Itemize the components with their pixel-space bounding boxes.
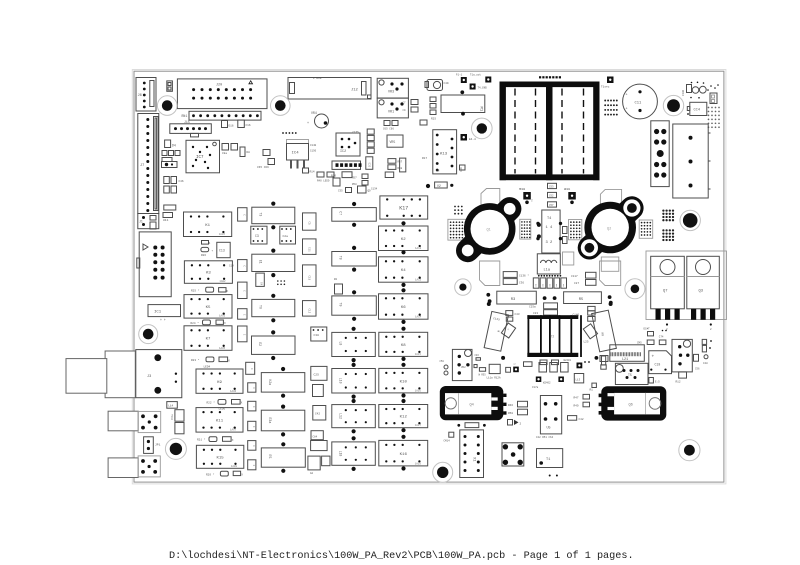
svg-text:F1-1: F1-1 <box>456 74 463 77</box>
svg-text:+ +: + + <box>160 318 166 322</box>
svg-text:L10: L10 <box>338 378 342 384</box>
svg-text:E4-4: E4-4 <box>469 138 476 141</box>
svg-text:Q4: Q4 <box>470 404 474 408</box>
svg-text:C42: C42 <box>579 418 584 421</box>
svg-text:L13: L13 <box>576 378 581 381</box>
svg-text:C9: C9 <box>403 109 407 112</box>
svg-text:T3: T3 <box>258 212 262 216</box>
svg-text:C25: C25 <box>314 373 320 376</box>
svg-text:J6: J6 <box>138 94 142 98</box>
svg-text:R1: R1 <box>590 389 594 392</box>
svg-text:R17: R17 <box>422 157 427 160</box>
svg-text:C12: C12 <box>308 309 311 314</box>
svg-text:E3a: E3a <box>268 418 272 424</box>
svg-text:3 2: 3 2 <box>546 241 554 245</box>
svg-text:Q9: Q9 <box>368 190 372 193</box>
svg-text:T2: T2 <box>551 335 555 339</box>
svg-text:C11: C11 <box>308 247 311 252</box>
svg-text:RN1: RN1 <box>182 114 188 118</box>
svg-text:W2402: W2402 <box>543 382 551 385</box>
svg-text:E5: E5 <box>268 455 272 459</box>
svg-text:R3: R3 <box>511 298 516 302</box>
svg-text:R21 *: R21 * <box>197 438 206 442</box>
svg-text:R40 LED9: R40 LED9 <box>317 180 330 183</box>
svg-text:L14: L14 <box>168 405 173 408</box>
svg-text:K12: K12 <box>400 416 408 420</box>
svg-text:C25a: C25a <box>529 306 536 309</box>
svg-text:C155: C155 <box>353 131 360 134</box>
svg-text:R58: R58 <box>352 183 357 186</box>
svg-text:C52: C52 <box>549 195 554 198</box>
svg-text:T1sec: T1sec <box>601 86 610 89</box>
svg-text:L21: L21 <box>622 358 628 362</box>
svg-text:D4: D4 <box>172 144 176 148</box>
svg-text:C49: C49 <box>444 82 449 85</box>
svg-text:R25: R25 <box>431 118 436 121</box>
svg-text:T6: T6 <box>258 305 262 309</box>
svg-text:J20: J20 <box>216 84 222 88</box>
svg-text:T4: T4 <box>547 217 551 221</box>
svg-text:L8: L8 <box>338 341 342 345</box>
svg-text:R46: R46 <box>508 404 513 407</box>
svg-text:VR3: VR3 <box>388 91 394 95</box>
svg-text:1A15: 1A15 <box>415 353 422 356</box>
svg-text:K2: K2 <box>401 238 406 242</box>
svg-text:C8a: C8a <box>222 152 227 155</box>
svg-text:C2a: C2a <box>283 235 289 238</box>
svg-text:D16: D16 <box>229 125 234 128</box>
svg-text:V2: V2 <box>437 184 441 188</box>
svg-text:DC#T: DC#T <box>644 328 651 331</box>
svg-text:IC4: IC4 <box>292 152 300 156</box>
svg-text:J12: J12 <box>351 89 359 93</box>
svg-text:L1a: L1a <box>544 269 551 273</box>
svg-text:C43: C43 <box>515 313 520 316</box>
svg-text:CM5: CM5 <box>637 341 642 344</box>
svg-text:IC2: IC2 <box>340 150 346 154</box>
svg-text:K15: K15 <box>216 456 224 460</box>
svg-text:1N: 1N <box>436 170 440 173</box>
svg-text:C74: C74 <box>659 335 664 338</box>
svg-text:R10: R10 <box>331 175 336 178</box>
svg-text:K8: K8 <box>401 344 406 348</box>
svg-text:T1: T1 <box>546 458 550 462</box>
svg-text:LED4: LED4 <box>204 365 211 368</box>
svg-text:CM14: CM14 <box>444 440 451 443</box>
svg-text:R26: R26 <box>201 254 206 257</box>
svg-text:C48: C48 <box>703 362 708 365</box>
svg-text:L12: L12 <box>338 413 342 419</box>
svg-text:K16: K16 <box>400 453 408 457</box>
svg-text:1A14: 1A14 <box>415 316 422 319</box>
svg-text:L18: L18 <box>338 451 342 457</box>
svg-text:R12: R12 <box>676 381 681 384</box>
svg-text:R14: R14 <box>310 171 315 174</box>
svg-text:1A05: 1A05 <box>219 347 226 350</box>
svg-text:T4_GND: T4_GND <box>478 87 488 90</box>
svg-text:LED6: LED6 <box>219 408 226 411</box>
svg-text:J1: J1 <box>139 220 143 224</box>
svg-text:1A08: 1A08 <box>231 465 238 468</box>
svg-text:C46: C46 <box>475 354 480 357</box>
svg-text:CC4: CC4 <box>694 109 700 113</box>
svg-text:T9: T9 <box>338 303 342 307</box>
svg-text:C7: C7 <box>338 211 342 215</box>
svg-text:C42: C42 <box>315 413 320 416</box>
svg-text:C13: C13 <box>219 249 225 253</box>
svg-text:C65 C66: C65 C66 <box>383 128 394 131</box>
svg-text:K11: K11 <box>216 419 224 423</box>
svg-text:+: + <box>307 122 309 126</box>
svg-text:1A06: 1A06 <box>230 390 237 393</box>
svg-text:L11a R12A: L11a R12A <box>487 377 501 380</box>
svg-text:WFB1: WFB1 <box>564 188 571 191</box>
svg-text:VR4: VR4 <box>311 111 317 115</box>
svg-text:R57: R57 <box>352 177 357 180</box>
svg-text:C14: C14 <box>229 265 234 268</box>
svg-text:C19: C19 <box>655 363 661 367</box>
svg-text:K5: K5 <box>206 306 211 310</box>
svg-text:R24 *: R24 * <box>191 321 200 325</box>
svg-text:C3: C3 <box>255 234 259 238</box>
svg-text:C53: C53 <box>549 186 554 189</box>
svg-text:C57: C57 <box>549 204 554 207</box>
svg-text:Q3: Q3 <box>699 290 704 294</box>
svg-text:C117: C117 <box>571 275 578 278</box>
svg-text:1A18: 1A18 <box>415 462 422 465</box>
svg-text:C36: C36 <box>519 282 524 285</box>
svg-text:1A07: 1A07 <box>230 429 237 432</box>
svg-text:R5: R5 <box>579 298 584 302</box>
svg-text:K9: K9 <box>217 381 222 385</box>
svg-text:1A17: 1A17 <box>415 424 422 427</box>
svg-text:1A1M: 1A1M <box>219 233 226 236</box>
svg-text:C17a: C17a <box>532 386 539 389</box>
svg-text:C16: C16 <box>246 124 251 127</box>
svg-text:1A03: 1A03 <box>219 315 226 318</box>
svg-text:K4: K4 <box>401 269 406 273</box>
svg-text:C56: C56 <box>695 368 700 371</box>
svg-text:C42 R51 C64: C42 R51 C64 <box>536 436 554 439</box>
svg-text:T1a_out: T1a_out <box>470 74 481 77</box>
svg-text:1A12: 1A12 <box>415 247 422 250</box>
svg-text:K6: K6 <box>401 306 406 310</box>
svg-text:R47: R47 <box>574 397 579 400</box>
svg-text:1A16: 1A16 <box>415 389 422 392</box>
svg-text:C23: C23 <box>533 312 538 315</box>
svg-text:K13: K13 <box>440 153 448 157</box>
svg-text:C5: C5 <box>308 222 311 226</box>
svg-text:U11: U11 <box>163 219 169 222</box>
svg-text:K7: K7 <box>206 338 211 342</box>
svg-text:J7: J7 <box>140 164 144 168</box>
svg-text:C140: C140 <box>310 144 317 147</box>
svg-text:VR2: VR2 <box>461 366 466 369</box>
svg-text:IC1: IC1 <box>154 311 162 315</box>
svg-text:R49: R49 <box>574 404 579 407</box>
svg-text:C150: C150 <box>310 150 317 153</box>
svg-text:T5: T5 <box>628 373 632 377</box>
svg-text:1A02: 1A02 <box>219 280 226 283</box>
svg-text:C15: C15 <box>308 276 311 281</box>
svg-text:R2: R2 <box>334 278 338 281</box>
svg-text:W2401: W2401 <box>564 359 572 362</box>
svg-text:C27: C27 <box>574 282 579 285</box>
svg-text:CCK: CCK <box>460 167 463 172</box>
svg-text:C136 *: C136 * <box>519 274 529 278</box>
svg-text:A2: A2 <box>310 472 314 475</box>
svg-text:VR1: VR1 <box>388 111 394 115</box>
svg-text:W R55: W R55 <box>479 373 487 376</box>
svg-text:R23 *: R23 * <box>191 358 200 362</box>
svg-text:L25: L25 <box>584 341 589 344</box>
svg-text:T8: T8 <box>338 256 342 260</box>
svg-text:C134: C134 <box>371 188 378 191</box>
svg-text:E:5: E:5 <box>655 381 660 384</box>
svg-text:Q7: Q7 <box>663 290 668 294</box>
svg-text:IC5: IC5 <box>368 162 371 167</box>
svg-text:E2: E2 <box>258 342 262 346</box>
svg-text:Q2: Q2 <box>607 228 611 232</box>
svg-text:C84: C84 <box>313 435 318 438</box>
svg-text:1A13: 1A13 <box>415 279 422 282</box>
svg-text:J15: J15 <box>184 120 190 124</box>
svg-text:+: + <box>626 94 628 98</box>
svg-text:K17: K17 <box>399 206 408 212</box>
svg-text:C30: C30 <box>314 334 320 337</box>
svg-text:J3: J3 <box>147 375 151 379</box>
svg-text:K1: K1 <box>205 224 210 228</box>
svg-text:+: + <box>652 355 655 360</box>
svg-text:R50: R50 <box>508 412 513 415</box>
svg-text:VR5: VR5 <box>390 140 396 144</box>
svg-text:C50: C50 <box>440 360 445 363</box>
svg-text:R25 *: R25 * <box>191 289 200 293</box>
svg-text:E1: E1 <box>258 260 262 264</box>
svg-text:X1: X1 <box>472 457 476 462</box>
svg-text:+: + <box>626 108 628 112</box>
svg-text:M1: M1 <box>479 107 483 112</box>
svg-text:C11: C11 <box>635 102 643 106</box>
svg-text:C130: C130 <box>682 89 685 96</box>
svg-text:K10: K10 <box>400 380 408 384</box>
svg-text:K3: K3 <box>206 272 211 276</box>
svg-text:JP1: JP1 <box>155 444 161 447</box>
svg-text:Q1: Q1 <box>487 229 491 233</box>
svg-text:Q6: Q6 <box>629 404 633 408</box>
svg-text:C7: C7 <box>403 102 407 105</box>
svg-text:C46: C46 <box>179 180 184 183</box>
svg-text:151a: 151a <box>171 414 174 420</box>
svg-text:1 4: 1 4 <box>546 226 554 230</box>
svg-text:D8: D8 <box>247 151 251 154</box>
svg-text:R22 *: R22 * <box>207 401 216 405</box>
svg-text:K2a: K2a <box>268 379 272 385</box>
svg-text:D:\lochdesi\NT-Electronics\100: D:\lochdesi\NT-Electronics\100W_PA_Rev2\… <box>169 550 634 562</box>
svg-text:C4: C4 <box>260 282 263 286</box>
svg-text:C65 C66: C65 C66 <box>257 166 269 169</box>
svg-text:IC7: IC7 <box>196 156 204 160</box>
svg-text:U5: U5 <box>547 427 551 431</box>
svg-text:MFB2: MFB2 <box>519 188 526 191</box>
svg-text:R20 *: R20 * <box>206 472 215 476</box>
svg-text:C35: C35 <box>338 190 343 193</box>
